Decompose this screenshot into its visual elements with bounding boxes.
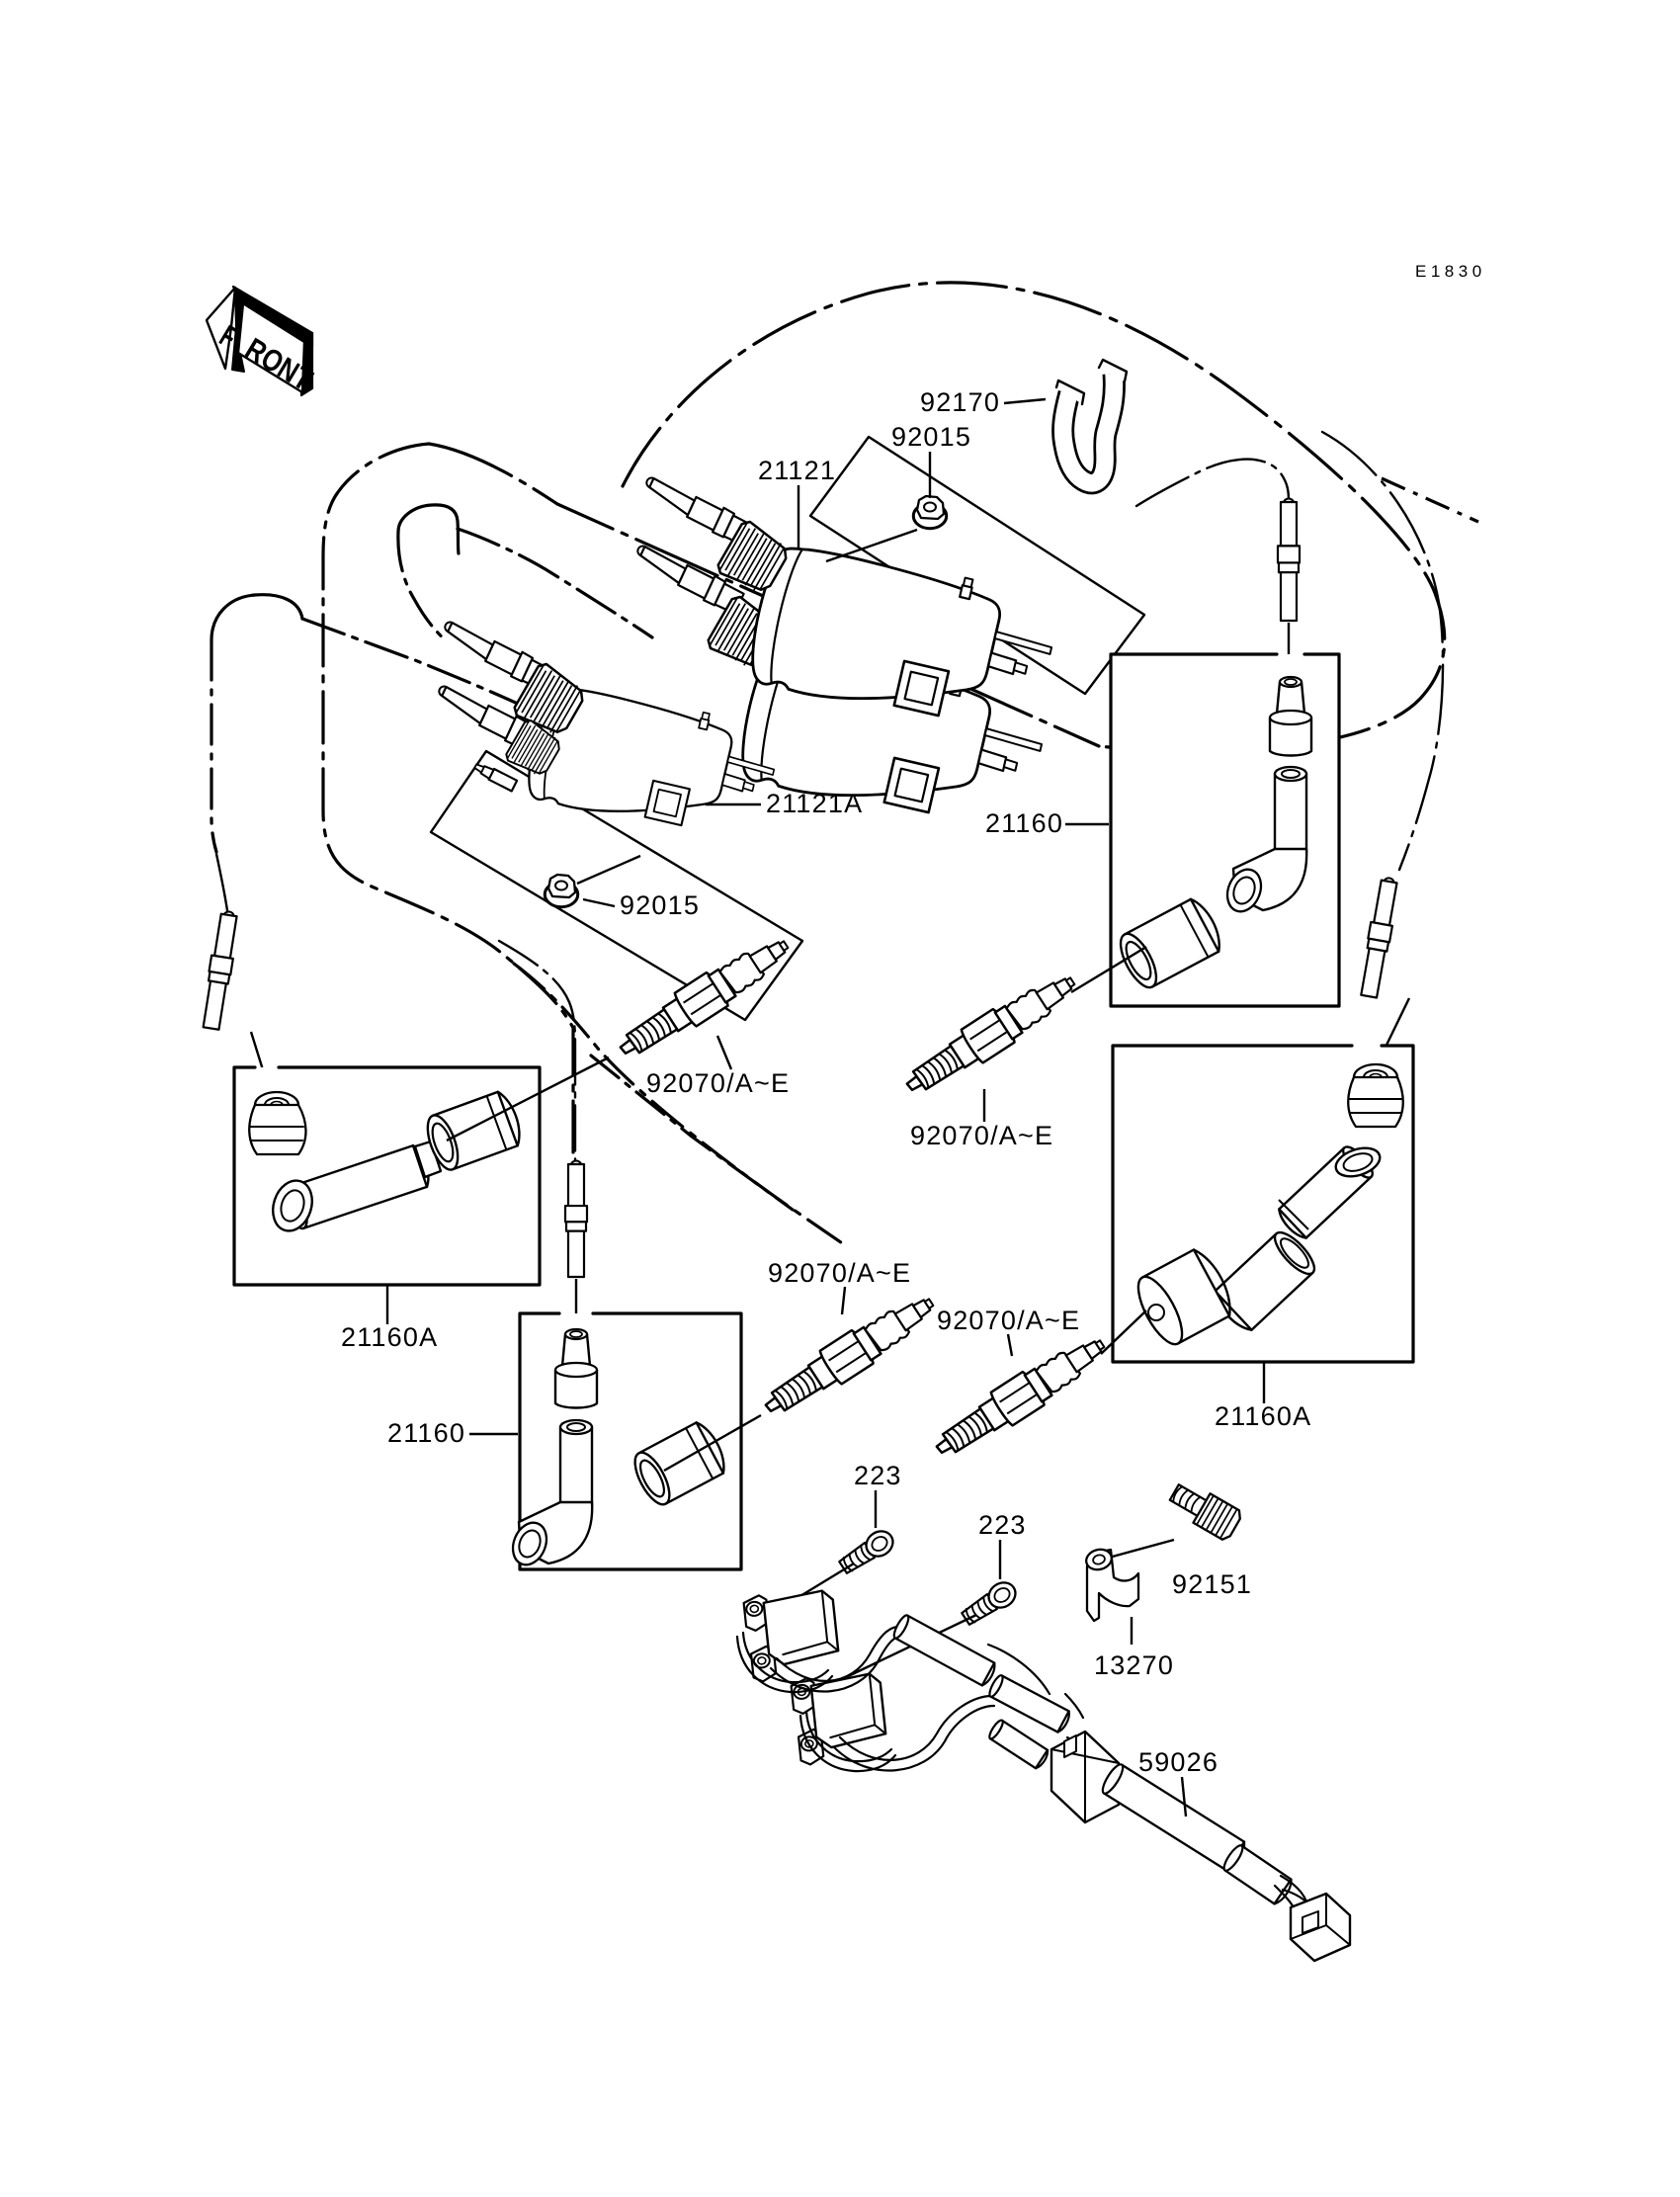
svg-text:92015: 92015 (620, 890, 700, 920)
svg-text:92015: 92015 (891, 422, 971, 452)
svg-text:13270: 13270 (1094, 1650, 1174, 1680)
svg-text:223: 223 (854, 1461, 902, 1490)
svg-text:92170: 92170 (920, 387, 1000, 417)
svg-text:21160A: 21160A (341, 1322, 438, 1352)
svg-text:223: 223 (978, 1510, 1027, 1540)
svg-text:92070/A~E: 92070/A~E (910, 1121, 1053, 1150)
svg-text:E1830: E1830 (1415, 262, 1486, 281)
svg-text:21121A: 21121A (766, 789, 863, 818)
svg-text:21160: 21160 (985, 808, 1063, 838)
svg-text:21121: 21121 (758, 456, 836, 485)
svg-text:21160: 21160 (387, 1418, 465, 1448)
svg-text:92070/A~E: 92070/A~E (768, 1258, 911, 1288)
svg-text:92070/A~E: 92070/A~E (646, 1068, 790, 1098)
svg-text:92151: 92151 (1172, 1569, 1252, 1599)
svg-text:92070/A~E: 92070/A~E (937, 1306, 1080, 1335)
svg-text:59026: 59026 (1138, 1747, 1218, 1777)
svg-text:21160A: 21160A (1215, 1401, 1311, 1431)
